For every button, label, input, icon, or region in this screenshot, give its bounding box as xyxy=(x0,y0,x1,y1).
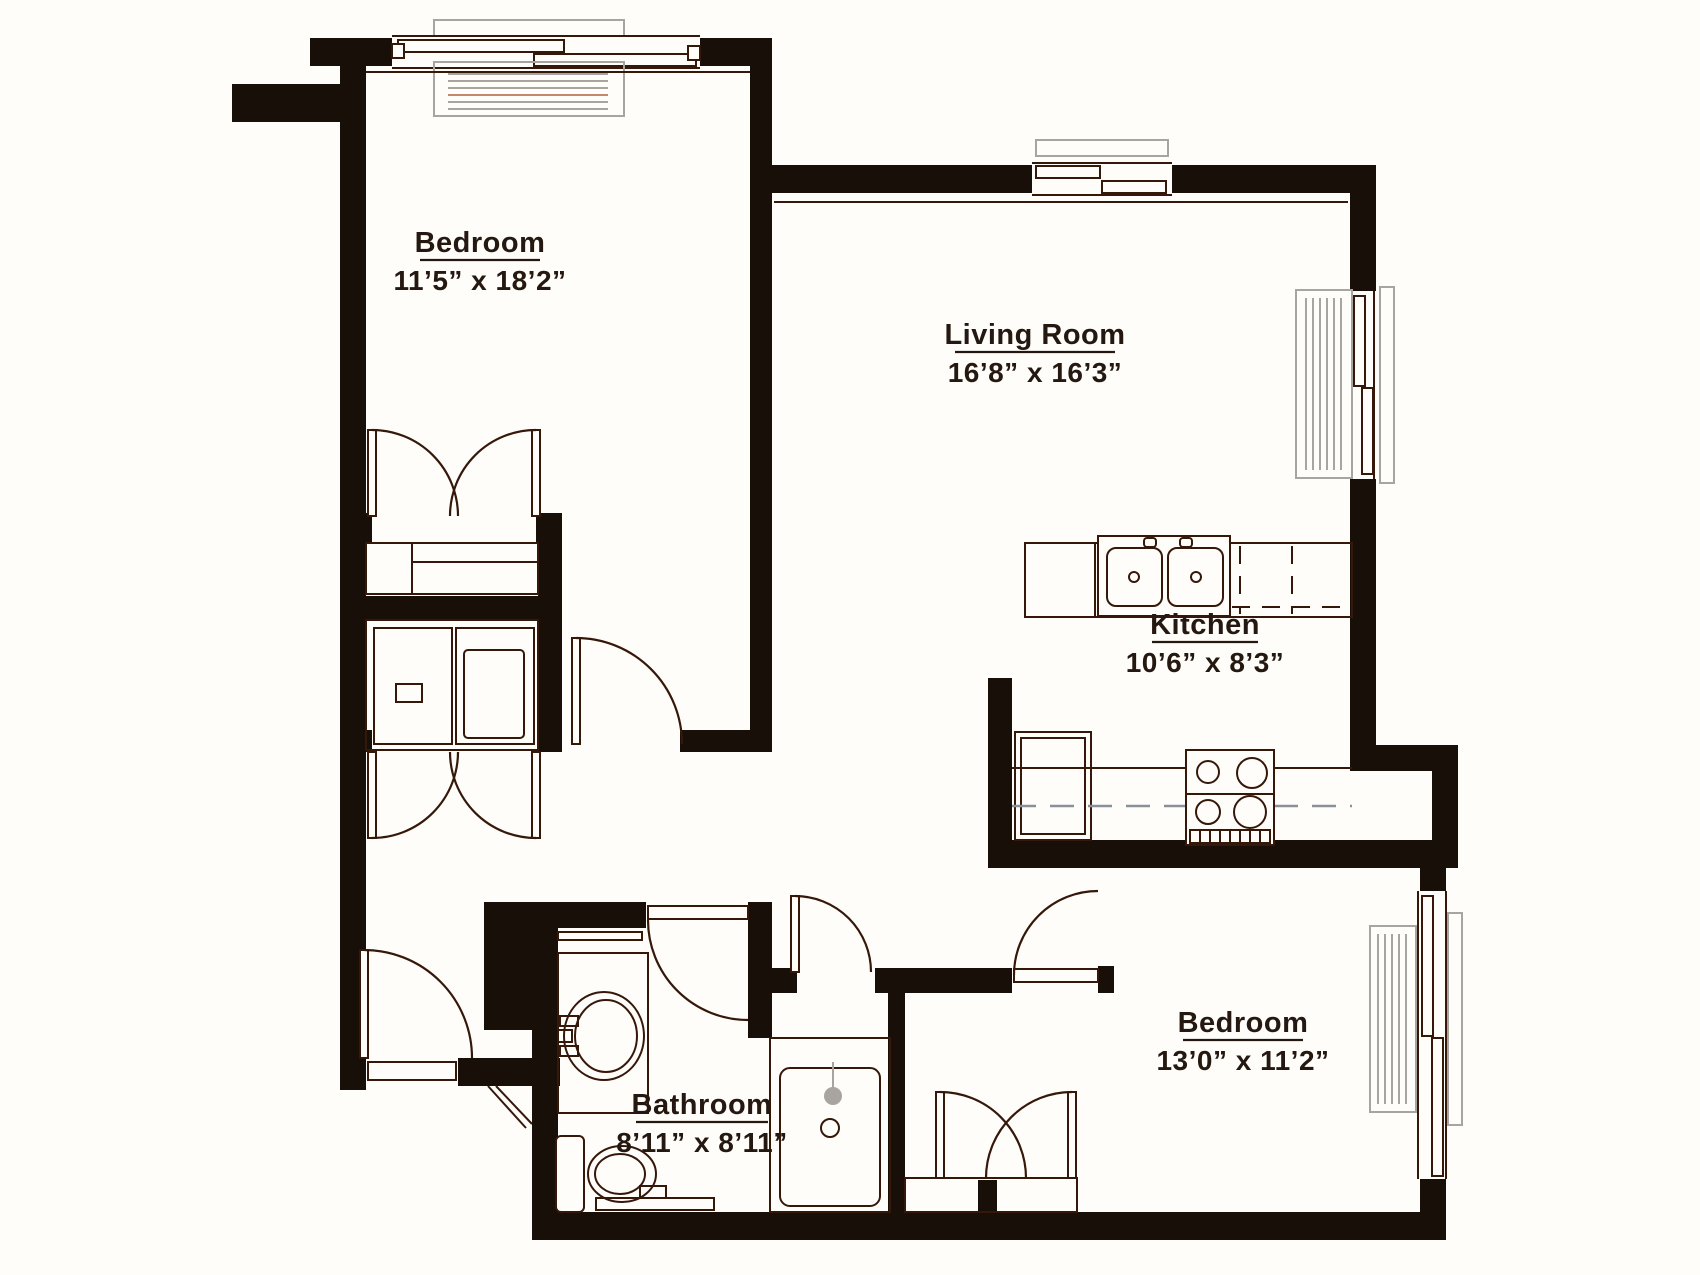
room-name: Living Room xyxy=(944,319,1125,351)
room-dimensions: 11’5” x 18’2” xyxy=(393,265,566,296)
bathroom-towel-bar xyxy=(558,932,642,940)
living-room-radiator xyxy=(1296,290,1352,478)
floor-plan-page: Bedroom 11’5” x 18’2” Living Room 16’8” … xyxy=(0,0,1700,1275)
range-stove xyxy=(1186,750,1274,845)
room-name: Bedroom xyxy=(1178,1007,1309,1039)
room-name: Bathroom xyxy=(632,1089,773,1121)
laundry-closet-french-doors xyxy=(368,752,540,838)
kitchen-counter-lower xyxy=(1012,768,1352,806)
room-label-bathroom: Bathroom 8’11” x 8’11” xyxy=(616,1089,788,1158)
room-label-bedroom-1: Bedroom 11’5” x 18’2” xyxy=(393,227,566,296)
room-name: Bedroom xyxy=(415,227,546,259)
bedroom1-entry-door xyxy=(572,638,682,744)
bedroom1-closet-french-doors xyxy=(368,430,540,516)
bedroom2-closet-french-doors xyxy=(936,1092,1076,1178)
room-label-kitchen: Kitchen 10’6” x 8’3” xyxy=(1126,609,1285,678)
bedroom2-radiator xyxy=(1370,926,1416,1112)
floor-plan: Bedroom 11’5” x 18’2” Living Room 16’8” … xyxy=(0,0,1700,1275)
refrigerator xyxy=(1015,732,1091,840)
bathtub-shower xyxy=(770,1038,890,1212)
room-dimensions: 16’8” x 16’3” xyxy=(948,357,1123,388)
bathroom-door xyxy=(648,906,748,1020)
room-name: Kitchen xyxy=(1150,609,1260,641)
kitchen-double-sink xyxy=(1098,536,1230,616)
apartment-entry-door xyxy=(360,950,472,1080)
washer-dryer-closet xyxy=(366,620,538,750)
bedroom2-entry-door xyxy=(1014,891,1098,982)
shower-room-door xyxy=(791,896,871,972)
room-dimensions: 8’11” x 8’11” xyxy=(616,1127,788,1158)
room-label-bedroom-2: Bedroom 13’0” x 11’2” xyxy=(1156,1007,1329,1076)
room-label-living-room: Living Room 16’8” x 16’3” xyxy=(944,319,1125,388)
room-dimensions: 10’6” x 8’3” xyxy=(1126,647,1285,678)
bedroom1-closet-shelves xyxy=(366,543,538,594)
room-dimensions: 13’0” x 11’2” xyxy=(1156,1045,1329,1076)
